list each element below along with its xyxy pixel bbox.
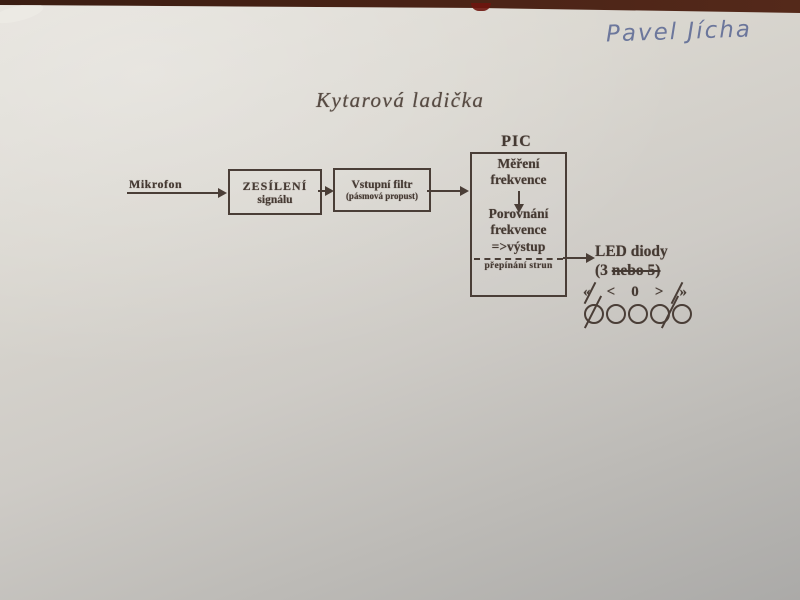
pic-dashed-divider xyxy=(474,258,563,260)
microphone-arrowhead xyxy=(218,188,227,198)
amplifier-block: ZESÍLENÍ signálu xyxy=(228,169,322,215)
led-count-prefix: (3 xyxy=(595,262,612,279)
pic-string-switching-label: přepínání strun xyxy=(484,261,552,271)
diagram-title: Kytarová ladička xyxy=(316,88,484,113)
pic-output-line: =>výstup xyxy=(492,239,546,255)
photo-of-paper-diagram: Pavel Jícha Kytarová ladička Mikrofon ZE… xyxy=(0,0,800,600)
pic-step2-line2: frekvence xyxy=(489,222,549,238)
led-circle-3 xyxy=(628,304,648,324)
pic-to-led-arrowhead xyxy=(586,253,595,263)
pic-step1-measure-frequency: Měření frekvence xyxy=(491,156,547,188)
led-diodes-count: (3 nebo 5) xyxy=(595,261,668,280)
pic-block: Měření frekvence Porovnání frekvence =>v… xyxy=(470,152,567,297)
led-diodes-title: LED diody xyxy=(595,242,668,261)
led-circle-5 xyxy=(672,304,692,324)
pic-chip-label: PIC xyxy=(470,133,563,151)
input-filter-line1: Vstupní filtr xyxy=(351,179,412,191)
led-circle-2 xyxy=(606,304,626,324)
pic-internal-down-arrow xyxy=(518,191,520,205)
paper-corner-curl xyxy=(0,0,45,27)
pic-step1-line2: frekvence xyxy=(491,172,547,188)
led-circle-row xyxy=(584,304,692,324)
symbol-right-chevron: > xyxy=(655,284,664,301)
symbol-left-chevron: < xyxy=(607,284,616,301)
filter-to-pic-arrowhead xyxy=(460,186,469,196)
led-count-struck: nebo 5) xyxy=(612,262,661,279)
amplifier-block-line1: ZESÍLENÍ xyxy=(243,179,308,194)
pic-step1-line1: Měření xyxy=(491,156,547,172)
microphone-arrow-line xyxy=(127,192,222,194)
pic-internal-down-arrowhead xyxy=(514,204,524,213)
microphone-label: Mikrofon xyxy=(129,177,182,192)
input-filter-block: Vstupní filtr (pásmová propust) xyxy=(333,168,431,212)
symbol-zero-center: 0 xyxy=(631,284,639,301)
filter-to-pic-arrow-line xyxy=(427,190,462,192)
led-diodes-label: LED diody (3 nebo 5) xyxy=(595,242,668,280)
amplifier-block-line2: signálu xyxy=(257,194,292,206)
input-filter-line2: (pásmová propust) xyxy=(346,191,418,201)
